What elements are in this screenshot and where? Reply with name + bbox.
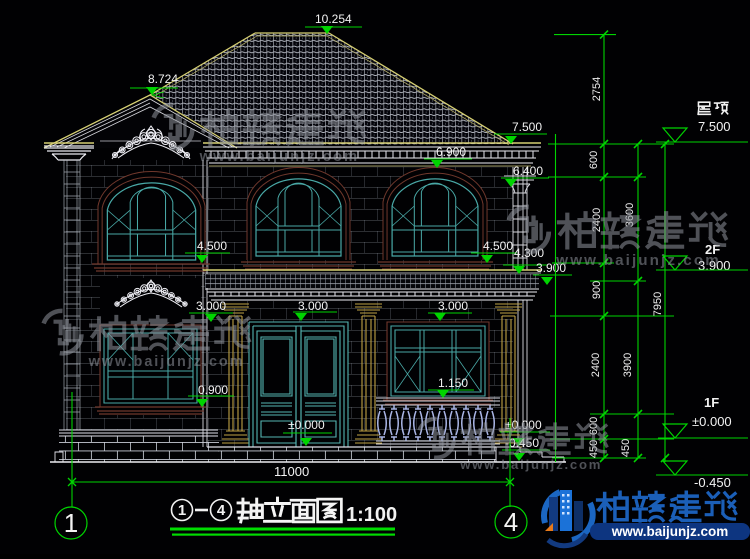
svg-text:±0.000: ±0.000	[692, 414, 732, 429]
svg-text:1:100: 1:100	[346, 504, 397, 526]
svg-text:4.500: 4.500	[483, 239, 513, 253]
svg-text:6.900: 6.900	[436, 145, 466, 159]
svg-text:600: 600	[588, 151, 600, 169]
svg-text:±0.000: ±0.000	[288, 418, 325, 432]
svg-text:2400: 2400	[590, 353, 602, 377]
svg-text:4: 4	[217, 502, 226, 519]
svg-text:1: 1	[178, 502, 186, 519]
svg-text:1.150: 1.150	[438, 376, 468, 390]
svg-text:7.500: 7.500	[512, 120, 542, 134]
svg-text:900: 900	[591, 281, 603, 299]
svg-text:10.254: 10.254	[315, 12, 352, 26]
svg-text:0.900: 0.900	[198, 383, 228, 397]
svg-text:3.000: 3.000	[196, 299, 226, 313]
svg-text:450: 450	[620, 439, 632, 457]
svg-text:3.000: 3.000	[298, 299, 328, 313]
svg-text:www.baijunjz.com: www.baijunjz.com	[611, 524, 729, 539]
svg-text:3900: 3900	[622, 353, 634, 377]
svg-text:4: 4	[504, 507, 518, 537]
svg-text:2754: 2754	[591, 77, 603, 101]
svg-text:-0.450: -0.450	[694, 475, 731, 490]
svg-text:4.500: 4.500	[197, 239, 227, 253]
svg-text:7.500: 7.500	[698, 119, 731, 134]
svg-text:7950: 7950	[652, 292, 664, 316]
svg-text:1: 1	[64, 508, 78, 538]
svg-text:6.400: 6.400	[513, 164, 543, 178]
svg-text:3.000: 3.000	[438, 299, 468, 313]
svg-text:11000: 11000	[274, 464, 309, 479]
svg-text:8.724: 8.724	[148, 72, 178, 86]
svg-text:1F: 1F	[704, 395, 719, 410]
